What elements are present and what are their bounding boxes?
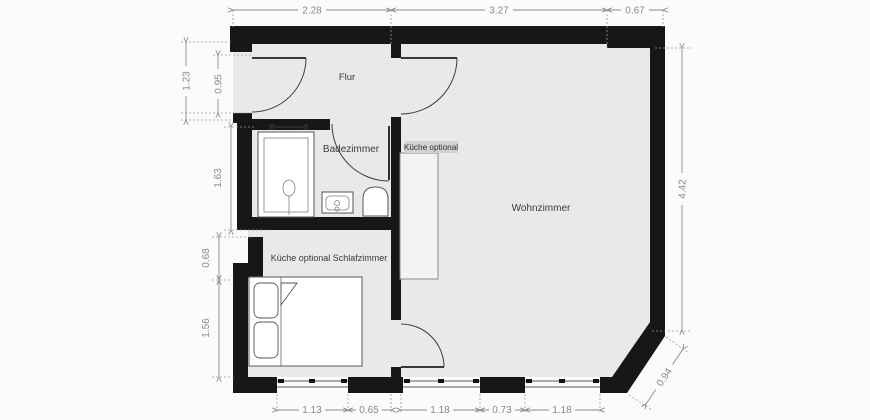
dimension-label: 0.73: [492, 405, 512, 416]
dimension-label-group: 1.56: [201, 318, 212, 338]
shower-screen-mount: [303, 124, 308, 129]
wall-left-bath: [237, 113, 252, 230]
window-tick: [473, 379, 479, 383]
wall-divider-bottom-stub: [391, 367, 401, 377]
dimension-label: 1.18: [430, 405, 450, 416]
bathtub: [258, 132, 314, 217]
room-label-flur: Flur: [339, 72, 355, 83]
window-living-2: [525, 377, 600, 393]
dimension-label: 1.23: [182, 71, 193, 91]
room-label-wohnzimmer: Wohnzimmer: [512, 203, 571, 214]
dimension-label: 0.65: [359, 405, 379, 416]
room-label-badezimmer: Badezimmer: [323, 144, 380, 155]
dimension-label: 2.28: [302, 6, 322, 17]
window-bedroom: [277, 377, 348, 393]
dimension-label-group: 1.23: [180, 66, 193, 96]
window-tick: [278, 379, 284, 383]
window-tick: [309, 379, 315, 383]
wall-top: [233, 26, 665, 44]
dimension-label: 0.67: [625, 6, 645, 17]
room-label-schlafzimmer: Küche optional Schlafzimmer: [271, 253, 388, 263]
dimension-label-group: 0.95: [212, 69, 225, 99]
window-tick: [593, 379, 599, 383]
dimension-label: 0.95: [214, 74, 225, 94]
wall-left-niche: [248, 237, 263, 264]
wall-flur-bad: [252, 119, 330, 130]
kitchen: [400, 153, 438, 279]
dimension-label-group: 4.42: [676, 173, 689, 205]
wall-bottom-1: [233, 377, 277, 393]
window-tick: [404, 379, 410, 383]
shower-screen-mount: [269, 124, 274, 129]
dimension-label: 1.63: [213, 168, 224, 188]
dimension-label: 3.27: [489, 6, 509, 17]
window-tick: [559, 379, 565, 383]
window-tick: [438, 379, 444, 383]
window-tick: [341, 379, 347, 383]
window-living-1: [403, 377, 480, 393]
wall-left-step: [233, 263, 263, 278]
room-label-kueche-optional: Küche optional: [404, 143, 458, 152]
kitchen-unit: [400, 153, 438, 279]
dimension-label: 1.56: [201, 318, 212, 338]
dimension-label: 4.42: [678, 179, 689, 199]
pillow: [254, 283, 278, 318]
windows: [277, 377, 600, 393]
wall-bottom-3: [480, 377, 525, 393]
wall-left-bedroom: [233, 278, 248, 377]
dimension-label: 0.68: [201, 248, 212, 268]
toilet: [363, 187, 388, 216]
floor-plan: Flur Badezimmer Küche optional Wohnzimme…: [0, 0, 870, 420]
wall-bottom-4: [598, 377, 614, 393]
floor-plan-svg: Flur Badezimmer Küche optional Wohnzimme…: [0, 0, 870, 420]
dimension-label: 1.18: [552, 405, 572, 416]
dimension-label: 1.13: [302, 405, 322, 416]
dimension-label-group: 1.63: [213, 168, 224, 188]
dimension-label-group: 0.68: [201, 248, 212, 268]
wall-divider-top-stub: [391, 44, 401, 58]
bed: [249, 277, 362, 366]
wall-left-corner-block: [230, 26, 252, 52]
wall-right: [650, 44, 665, 332]
wall-bottom-2: [348, 377, 403, 393]
wall-bad-schlafzimmer: [237, 217, 401, 230]
pillow: [254, 322, 278, 358]
window-tick: [526, 379, 532, 383]
